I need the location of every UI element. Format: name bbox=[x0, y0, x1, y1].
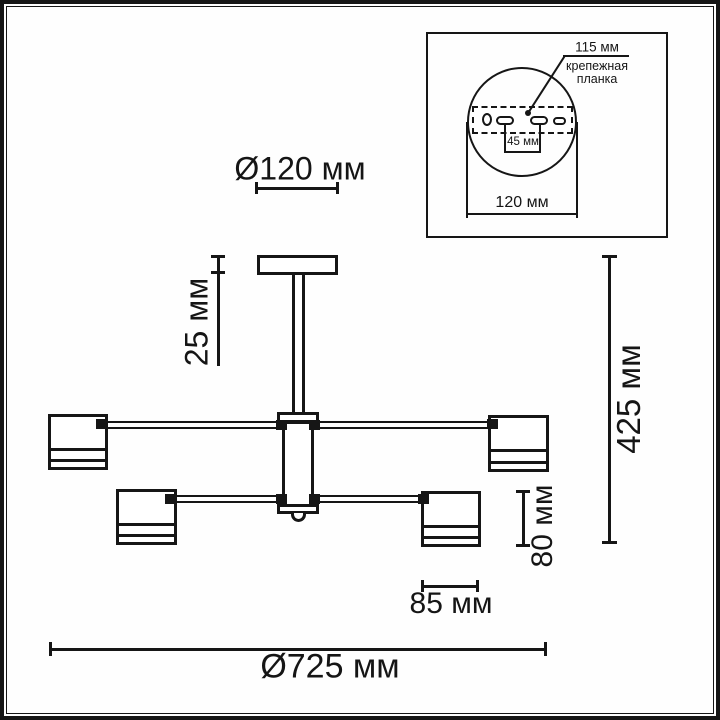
connector-body-upper-right bbox=[309, 420, 320, 430]
dim-tick bbox=[602, 541, 617, 544]
connector-shade-upper-left bbox=[96, 419, 107, 429]
shade-rib bbox=[491, 449, 546, 452]
dim-tick bbox=[602, 255, 617, 258]
dim-ext-line-right bbox=[576, 122, 578, 218]
connector-body-upper-left bbox=[276, 420, 287, 430]
dim-mount-length-label: 115 мм bbox=[575, 40, 619, 55]
dim-tick bbox=[544, 642, 547, 656]
arm-lower-left bbox=[170, 495, 282, 503]
dim-hole-spacing-line bbox=[504, 151, 541, 153]
shade-rib bbox=[119, 523, 174, 526]
connector-shade-lower-right bbox=[418, 494, 429, 504]
shade-rib bbox=[424, 525, 478, 528]
bracket-label-line2: планка bbox=[577, 72, 618, 86]
bracket-slot-small bbox=[553, 117, 566, 125]
shade-rib bbox=[119, 534, 174, 537]
dim-plate-diameter-label: 120 мм bbox=[495, 194, 548, 212]
dim-shade-height-label: 80 мм bbox=[526, 485, 560, 568]
shade-rib bbox=[51, 459, 105, 462]
dim-total-height-label: 425 мм bbox=[610, 344, 648, 454]
dim-ext-slot-right bbox=[539, 124, 541, 153]
dim-plate-diameter-line bbox=[466, 213, 578, 215]
arm-upper-right bbox=[316, 421, 493, 429]
dim-tick bbox=[211, 271, 225, 274]
dim-hole-spacing-label: 45 мм bbox=[507, 136, 539, 148]
dim-tick bbox=[211, 255, 225, 258]
connector-body-lower-right bbox=[309, 494, 320, 504]
ceiling-canopy bbox=[257, 255, 338, 275]
dim-canopy-height-label: 25 мм bbox=[179, 278, 216, 366]
dim-tick bbox=[49, 642, 52, 656]
bracket-label-line1: крепежная bbox=[566, 59, 628, 73]
dim-shade-height-line bbox=[522, 491, 525, 546]
dim-tick bbox=[255, 182, 258, 194]
shade-rib bbox=[51, 448, 105, 451]
dim-ext-line-left bbox=[466, 122, 468, 218]
dim-shade-width-label: 85 мм bbox=[410, 587, 493, 621]
dim-canopy-diameter-line bbox=[256, 187, 339, 190]
connector-shade-upper-right bbox=[487, 419, 498, 429]
connector-body-lower-left bbox=[276, 494, 287, 504]
stem bbox=[292, 274, 305, 415]
shade-rib bbox=[424, 536, 478, 539]
leader-underline bbox=[563, 55, 629, 57]
connector-shade-lower-left bbox=[165, 494, 176, 504]
bracket-hole-round bbox=[482, 113, 492, 126]
technical-drawing-page: Ø120 мм 25 мм 425 мм 80 мм 85 мм Ø725 мм… bbox=[0, 0, 720, 720]
dim-ext-slot-left bbox=[504, 124, 506, 153]
shade-lower-right bbox=[421, 491, 481, 547]
dim-total-diameter-label: Ø725 мм bbox=[260, 648, 399, 687]
dim-tick bbox=[336, 182, 339, 194]
arm-upper-left bbox=[102, 421, 282, 429]
shade-rib bbox=[491, 461, 546, 464]
arm-lower-right bbox=[316, 495, 425, 503]
